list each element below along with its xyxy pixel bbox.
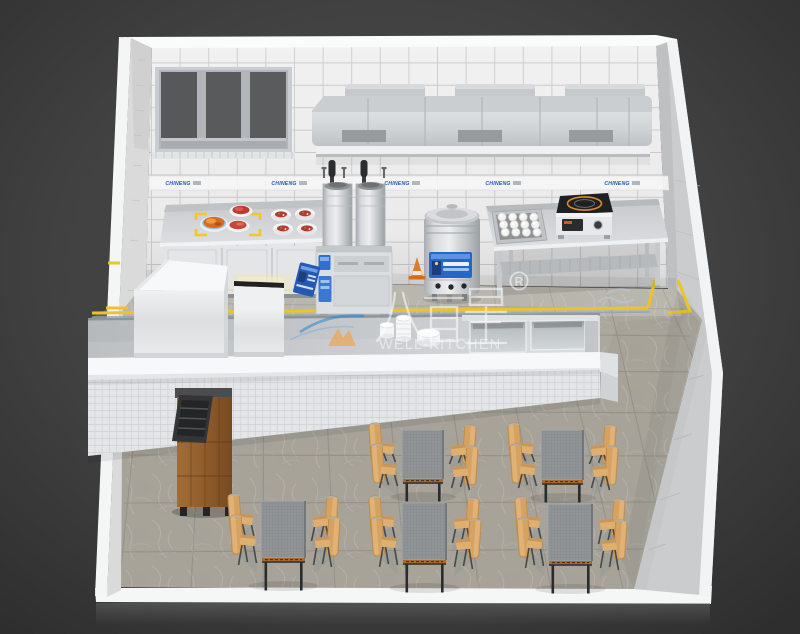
svg-text:CHINENG: CHINENG [165,181,190,187]
svg-text:CHINENG: CHINENG [485,181,510,187]
svg-text:WELL-KITCHEN: WELL-KITCHEN [379,337,501,353]
svg-text:CHINENG: CHINENG [271,181,296,187]
svg-text:CHINENG: CHINENG [384,181,409,187]
svg-text:R: R [515,275,524,289]
svg-text:CHINENG: CHINENG [604,181,629,187]
